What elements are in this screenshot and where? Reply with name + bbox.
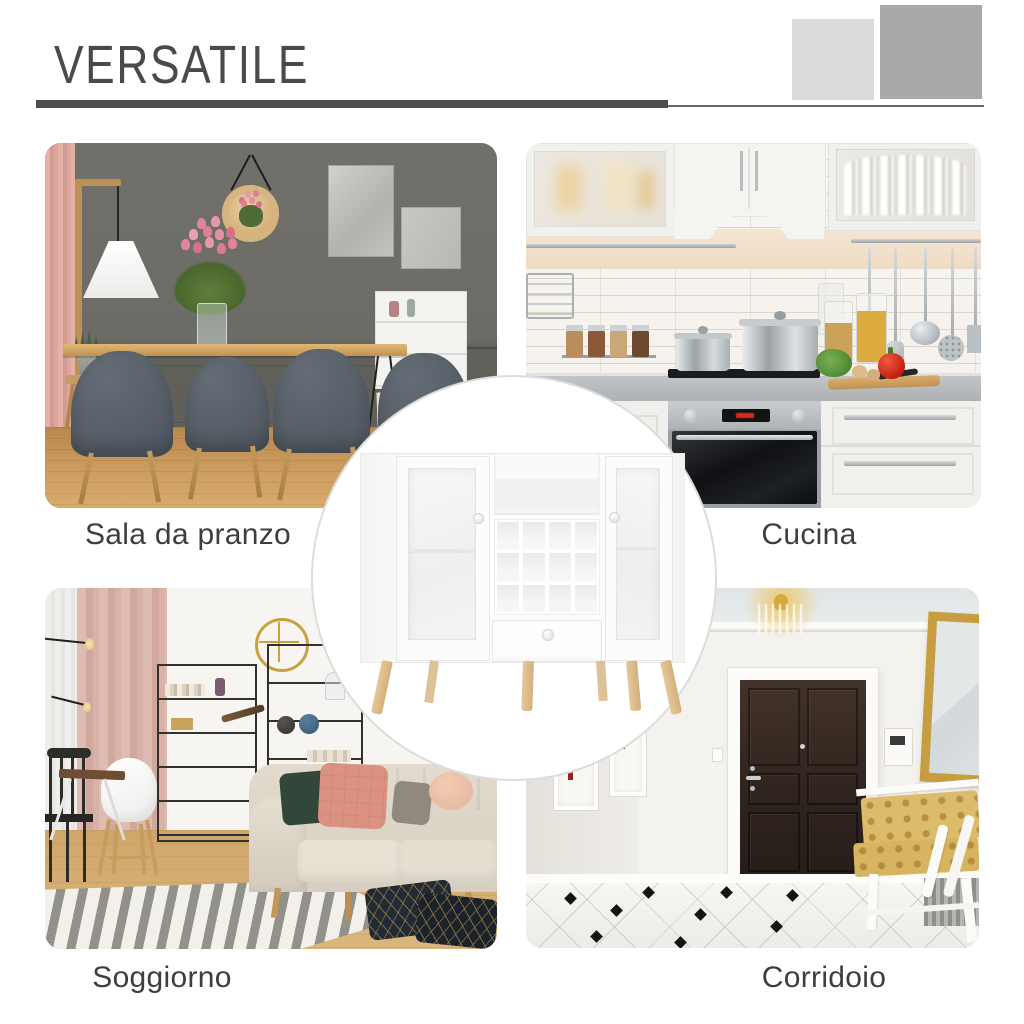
utensil-handle: [894, 247, 897, 343]
product-infographic: VERSATILE: [0, 0, 1024, 1024]
skirting-board: [526, 874, 979, 883]
center-product-circle: [311, 375, 717, 781]
door-panel: [807, 773, 859, 806]
utensil-handle: [974, 247, 977, 327]
cabinet-side-panel: [671, 454, 685, 662]
glass-pane: [408, 468, 476, 640]
red-pepper: [878, 353, 905, 379]
wine-slot: [523, 553, 545, 580]
wine-slot: [575, 553, 597, 580]
shelf-vase: [389, 301, 399, 317]
cabinet-back-leg: [424, 660, 439, 703]
plates-behind-glass: [844, 155, 966, 215]
abstract-wall-art: [328, 165, 394, 257]
wall-lamp-bulb: [83, 702, 91, 712]
cabinet-side-panel: [361, 454, 397, 662]
dining-chair: [71, 351, 173, 457]
cabinet-leg: [521, 661, 534, 711]
door-panel: [748, 688, 800, 766]
spice-jar: [610, 325, 627, 357]
gold-framed-mirror: [920, 612, 979, 787]
pot-lid: [739, 319, 821, 326]
decorative-square-dark: [880, 5, 982, 99]
title-underline-bar: [36, 100, 668, 108]
intercom-screen: [890, 736, 905, 745]
tulip-bouquet-flowers: [181, 239, 190, 250]
white-sideboard-product-image: [360, 453, 685, 719]
dining-chair: [273, 349, 370, 453]
floor-lamp-arm: [75, 179, 121, 186]
door-lock: [750, 766, 755, 771]
wine-rack-grid: [494, 519, 600, 615]
dark-gold-pattern-pillow: [415, 892, 497, 949]
interior-shelf: [617, 547, 659, 550]
drawer-knob: [543, 630, 553, 640]
mushroom: [852, 365, 867, 378]
drawer: [492, 620, 602, 662]
steel-pot: [742, 325, 818, 371]
drawer-panel: [832, 407, 974, 445]
oven-knob: [684, 409, 698, 423]
label-hallway: Corridoio: [762, 961, 886, 995]
utensil-handle: [951, 247, 954, 337]
oven-display-digits: [736, 413, 754, 418]
door-knob: [474, 514, 483, 523]
drawer-panel: [832, 453, 974, 495]
cabinet-content-blur: [556, 165, 582, 211]
lettuce: [816, 349, 852, 377]
wine-slot: [549, 522, 571, 549]
mushroom: [867, 369, 880, 380]
label-dining-room: Sala da pranzo: [85, 518, 291, 552]
label-living-room: Soggiorno: [92, 961, 231, 995]
ladle: [910, 321, 940, 345]
pot-lid-knob: [774, 311, 786, 320]
seat-cushion: [297, 840, 401, 882]
books: [307, 750, 351, 762]
grater: [967, 325, 981, 353]
spice-jar: [632, 325, 649, 357]
steel-pot: [676, 337, 730, 371]
door-panel: [807, 688, 859, 766]
wine-slot: [549, 553, 571, 580]
plate-flower-tulips: [241, 200, 247, 207]
title-underline-thin-line: [668, 105, 984, 107]
glass-pane: [616, 468, 660, 640]
cabinet-door-split: [748, 147, 750, 211]
open-shelf-compartment: [494, 454, 600, 515]
door-knob: [610, 513, 619, 522]
dark-globe: [277, 716, 295, 734]
cabinet-leg: [626, 661, 641, 712]
oven-handle: [676, 435, 813, 440]
page-title: VERSATILE: [54, 38, 309, 92]
wine-slot: [497, 585, 519, 612]
abstract-wall-art: [401, 207, 461, 269]
plate-flower-greens: [239, 205, 263, 227]
floor-lamp-cord: [117, 186, 119, 243]
spice-jar: [588, 325, 605, 357]
cabinet-handle: [755, 151, 758, 191]
door-panels: [748, 688, 858, 872]
interior-shelf: [409, 549, 475, 552]
pink-quilted-pillow: [317, 762, 388, 829]
chandelier-crystals: [758, 604, 806, 634]
dining-chair: [185, 357, 269, 452]
decorative-square-light: [792, 19, 874, 100]
blue-globe: [299, 714, 319, 734]
door-panel: [807, 812, 859, 872]
wine-slot: [549, 585, 571, 612]
wall-rail: [851, 239, 981, 243]
wine-slot: [523, 522, 545, 549]
wine-slot: [497, 522, 519, 549]
pot-lid-knob: [698, 326, 708, 334]
skimmer: [938, 335, 964, 361]
upper-cabinet-center: [674, 143, 826, 217]
wine-slot: [575, 522, 597, 549]
utensil-handle: [924, 247, 927, 323]
books: [165, 684, 205, 696]
wall-rail: [526, 244, 736, 248]
cabinet-handle: [740, 151, 743, 191]
cabinet-back-leg: [596, 661, 608, 702]
black-chair-seat: [45, 814, 93, 822]
cabinet-content-blur: [638, 171, 654, 209]
door-peephole: [800, 744, 805, 749]
clock-spoke: [259, 641, 299, 643]
spice-jar-row: [566, 325, 649, 357]
drawer-handle: [844, 415, 956, 420]
gray-pillow: [391, 780, 433, 826]
vase: [215, 678, 225, 696]
door-lock: [750, 786, 755, 791]
pasta-jar: [856, 293, 887, 363]
gold-box: [171, 718, 193, 730]
peach-pillow: [429, 772, 473, 810]
door-panel: [748, 812, 800, 872]
drawer-split: [821, 445, 981, 447]
label-kitchen: Cucina: [761, 518, 856, 552]
wall-lamp-bulb: [85, 638, 94, 650]
wire-basket: [526, 273, 574, 319]
door-handle: [746, 776, 761, 780]
shelf-bottle: [407, 299, 415, 317]
intercom-panel: [884, 728, 913, 766]
oven-knob: [792, 409, 806, 423]
cabinet-content-blur: [604, 161, 634, 211]
wine-slot: [523, 585, 545, 612]
wine-slot: [575, 585, 597, 612]
seat-cushion: [397, 840, 497, 882]
drawer-handle: [844, 461, 956, 466]
spice-jar: [566, 325, 583, 357]
light-switch: [712, 748, 723, 762]
wine-slot: [497, 553, 519, 580]
cabinet-leg: [371, 660, 393, 715]
sofa-leg: [345, 892, 351, 920]
cabinet-leg: [660, 660, 682, 715]
